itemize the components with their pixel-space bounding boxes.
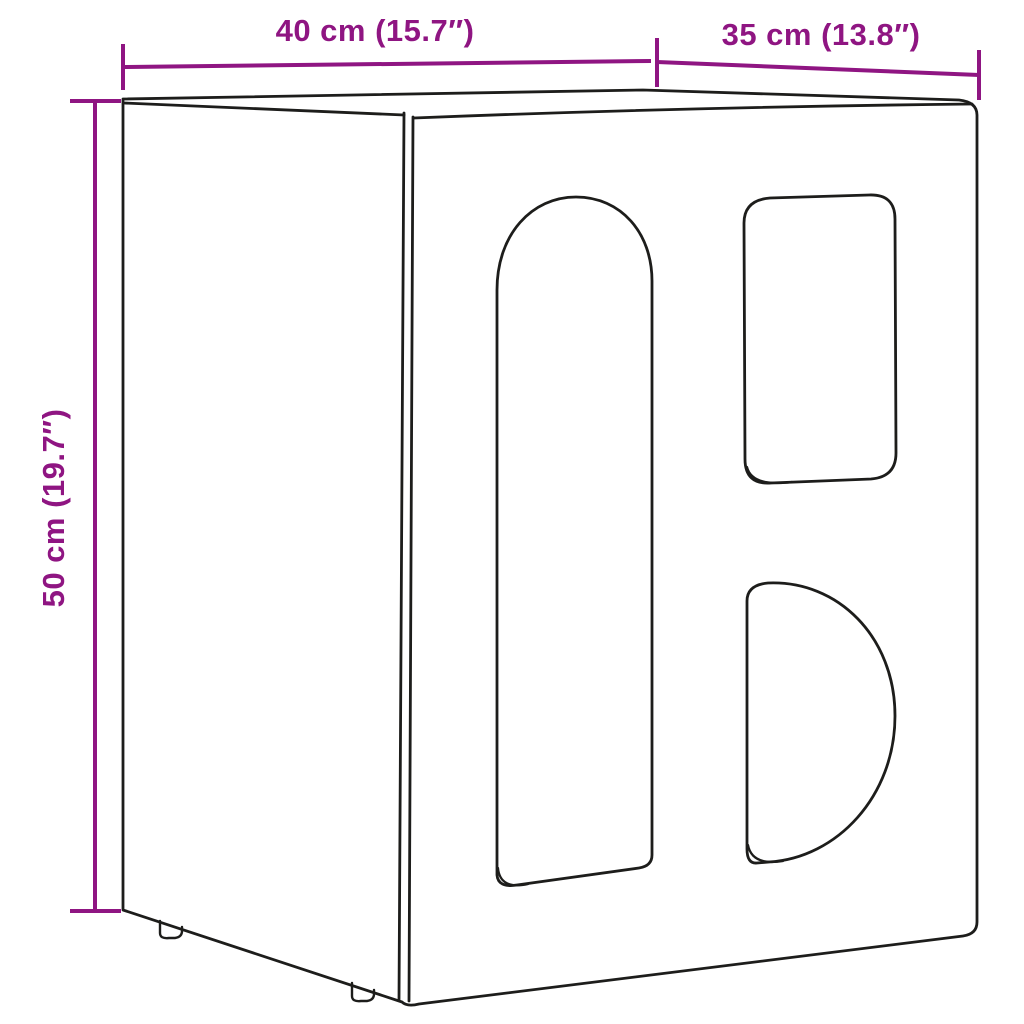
- furniture-outline: [123, 90, 977, 1005]
- semicircle-cutout: [747, 583, 895, 863]
- furniture-drawing: [123, 90, 977, 1005]
- front-edge-right-line: [409, 117, 413, 1001]
- semicircle-cutout-thickness-line: [748, 845, 783, 862]
- width-dimension-label: 40 cm (15.7″): [276, 13, 475, 48]
- width-dimension-line: [123, 61, 651, 67]
- dimension-drawing-canvas: 40 cm (15.7″) 35 cm (13.8″) 50 cm (19.7″…: [0, 0, 1024, 1024]
- height-dimension-label: 50 cm (19.7″): [36, 409, 71, 608]
- product-dimension-diagram: 40 cm (15.7″) 35 cm (13.8″) 50 cm (19.7″…: [0, 0, 1024, 1024]
- front-edge-left-line: [399, 113, 404, 1000]
- top-rim-right-line: [414, 104, 972, 118]
- dimension-labels: 40 cm (15.7″) 35 cm (13.8″) 50 cm (19.7″…: [36, 13, 920, 607]
- arch-cutout: [497, 197, 652, 886]
- top-rim-left-line: [124, 103, 404, 115]
- rectangle-cutout: [744, 195, 896, 483]
- depth-dimension-label: 35 cm (13.8″): [722, 17, 921, 52]
- depth-dimension-line: [657, 62, 979, 75]
- dimension-annotations: [70, 38, 979, 911]
